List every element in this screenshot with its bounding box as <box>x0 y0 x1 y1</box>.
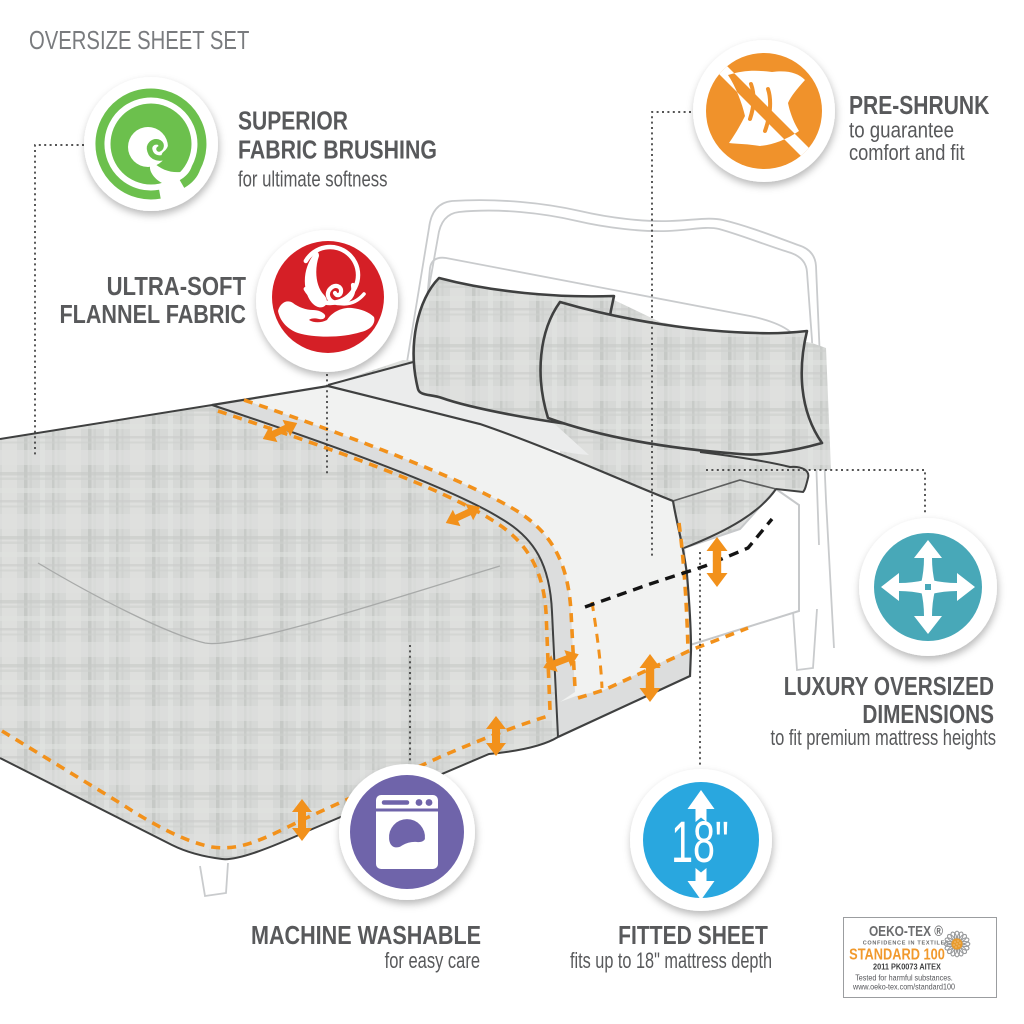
svg-text:2011 PK0073 AITEX: 2011 PK0073 AITEX <box>873 962 942 971</box>
svg-text:FABRIC BRUSHING: FABRIC BRUSHING <box>238 136 437 166</box>
svg-text:to fit premium mattress height: to fit premium mattress heights <box>771 726 997 751</box>
svg-text:MACHINE WASHABLE: MACHINE WASHABLE <box>251 921 481 950</box>
svg-text:OVERSIZE SHEET SET: OVERSIZE SHEET SET <box>29 26 249 55</box>
svg-text:ULTRA-SOFT: ULTRA-SOFT <box>107 272 247 301</box>
svg-text:for easy care: for easy care <box>385 949 480 974</box>
svg-text:to guarantee: to guarantee <box>849 119 954 143</box>
svg-text:for ultimate softness: for ultimate softness <box>238 167 388 192</box>
svg-text:18": 18" <box>671 809 729 874</box>
svg-text:FITTED SHEET: FITTED SHEET <box>618 922 768 951</box>
svg-text:FLANNEL FABRIC: FLANNEL FABRIC <box>60 300 246 329</box>
svg-text:fits up to 18" mattress depth: fits up to 18" mattress depth <box>570 949 772 974</box>
svg-text:OEKO-TEX ®: OEKO-TEX ® <box>869 923 943 939</box>
svg-text:comfort and fit: comfort and fit <box>849 142 965 166</box>
svg-text:Tested for harmful substances.: Tested for harmful substances. <box>855 973 953 982</box>
svg-text:SUPERIOR: SUPERIOR <box>238 108 348 137</box>
svg-text:PRE-SHRUNK: PRE-SHRUNK <box>849 92 989 121</box>
svg-text:LUXURY OVERSIZED: LUXURY OVERSIZED <box>784 672 994 701</box>
svg-text:DIMENSIONS: DIMENSIONS <box>862 700 994 729</box>
svg-text:www.oeko-tex.com/standard100: www.oeko-tex.com/standard100 <box>852 982 955 991</box>
